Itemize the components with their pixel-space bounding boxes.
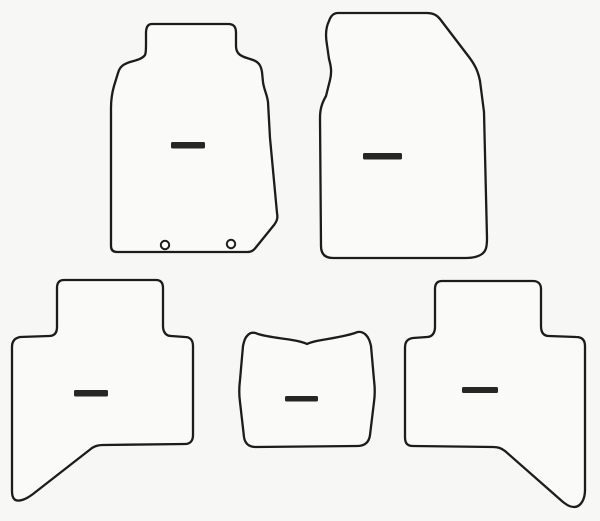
fixing-eyelet [161, 241, 169, 249]
car-mat-set-diagram [0, 0, 600, 521]
rear-left-mat-logo-dash [74, 390, 108, 397]
front-passenger-mat-outline [320, 13, 487, 258]
car-mat-set-svg [0, 0, 600, 521]
center-tunnel-mat-outline [239, 332, 375, 447]
rear-right-mat [405, 281, 585, 507]
rear-right-mat-outline [405, 281, 585, 507]
front-passenger-mat-logo-dash [363, 153, 402, 160]
rear-left-mat [12, 280, 193, 501]
front-passenger-mat [320, 13, 487, 258]
front-driver-mat-outline [111, 24, 277, 252]
front-driver-mat-logo-dash [171, 142, 205, 149]
rear-right-mat-logo-dash [462, 387, 498, 393]
center-tunnel-mat [239, 332, 375, 447]
fixing-eyelet [227, 240, 235, 248]
center-tunnel-mat-logo-dash [285, 396, 318, 402]
front-driver-mat [111, 24, 277, 252]
